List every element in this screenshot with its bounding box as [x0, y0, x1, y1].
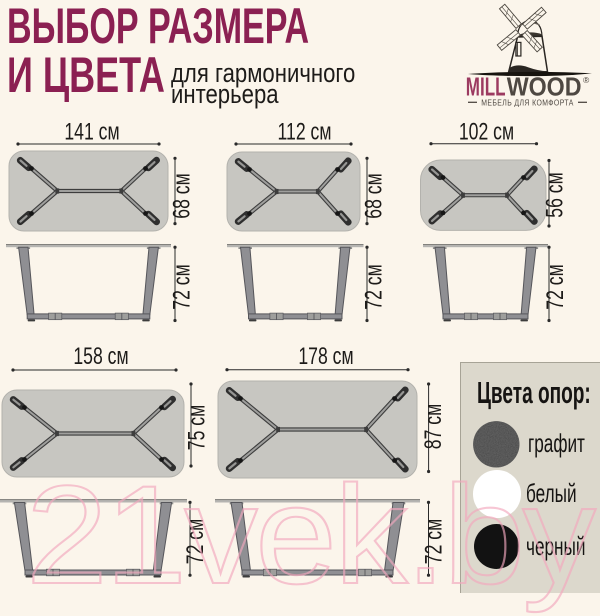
svg-text:102 см: 102 см — [459, 118, 514, 146]
svg-text:141 см: 141 см — [64, 118, 119, 146]
svg-text:72 см: 72 см — [168, 264, 196, 309]
svg-text:158 см: 158 см — [73, 342, 128, 370]
svg-text:56 см: 56 см — [541, 172, 569, 217]
svg-text:72 см: 72 см — [541, 264, 569, 309]
svg-text:87 см: 87 см — [419, 404, 447, 449]
svg-text:112 см: 112 см — [278, 118, 332, 146]
svg-text:68 см: 68 см — [360, 173, 388, 218]
svg-text:68 см: 68 см — [168, 173, 196, 218]
svg-text:178 см: 178 см — [298, 342, 353, 370]
svg-text:75 см: 75 см — [183, 405, 211, 450]
svg-text:72 см: 72 см — [360, 264, 388, 309]
